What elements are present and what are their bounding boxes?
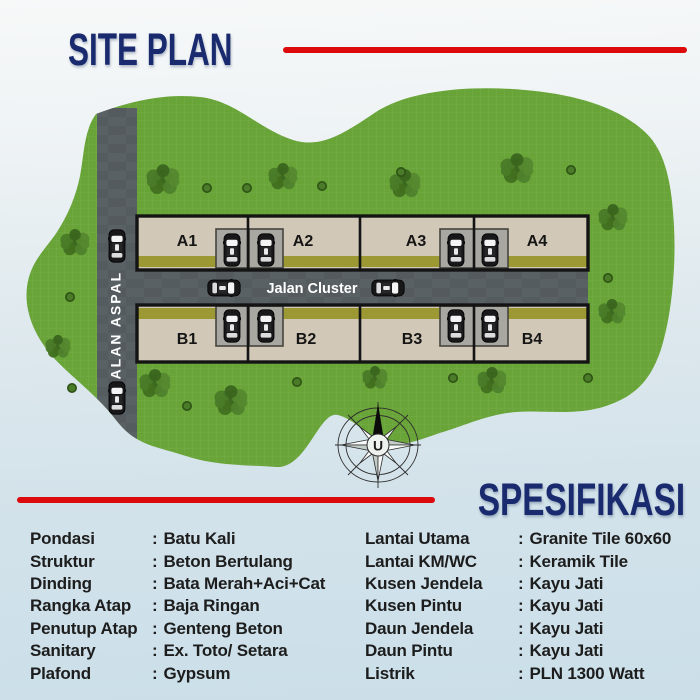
car-icon <box>108 230 126 262</box>
spec-value: :Kayu Jati <box>518 641 692 661</box>
garden-strip-b <box>137 308 588 319</box>
spec-title: SPESIFIKASI <box>478 477 685 522</box>
bush-icon <box>66 293 74 301</box>
bush-icon <box>318 182 326 190</box>
spec-colon: : <box>518 574 523 593</box>
spec-value: :Beton Bertulang <box>152 552 365 572</box>
spec-label: Daun Pintu <box>365 641 518 661</box>
spec-value: :Genteng Beton <box>152 619 365 639</box>
spec-row: Kusen Pintu :Kayu Jati <box>365 595 692 617</box>
spec-label: Plafond <box>30 664 152 684</box>
spec-value: :Gypsum <box>152 664 365 684</box>
unit-label-b4: B4 <box>522 331 543 348</box>
spec-row: Penutup Atap :Genteng Beton <box>30 618 365 640</box>
spec-colon: : <box>152 664 157 683</box>
spec-colon: : <box>518 552 523 571</box>
car-icon <box>447 310 465 342</box>
bush-icon <box>397 168 405 176</box>
spec-label: Pondasi <box>30 529 152 549</box>
spec-label: Daun Jendela <box>365 619 518 639</box>
spec-colon: : <box>152 552 157 571</box>
unit-label-a2: A2 <box>293 233 314 250</box>
unit-label-a4: A4 <box>527 233 548 250</box>
spec-row: Kusen Jendela :Kayu Jati <box>365 573 692 595</box>
spec-row: Lantai Utama :Granite Tile 60x60 <box>365 528 692 550</box>
road-vertical-label: JALAN ASPAL <box>108 271 124 389</box>
spec-label: Struktur <box>30 552 152 572</box>
bush-icon <box>584 374 592 382</box>
spec-label: Rangka Atap <box>30 596 152 616</box>
spec-row: Plafond :Gypsum <box>30 662 365 684</box>
road-horizontal-label: Jalan Cluster <box>266 281 357 297</box>
bush-icon <box>567 166 575 174</box>
spec-colon: : <box>152 641 157 660</box>
car-icon <box>481 310 499 342</box>
car-icon <box>223 310 241 342</box>
bush-icon <box>68 384 76 392</box>
unit-label-a1: A1 <box>177 233 198 250</box>
bush-icon <box>203 184 211 192</box>
spec-label: Lantai KM/WC <box>365 552 518 572</box>
spec-value: :Granite Tile 60x60 <box>518 529 692 549</box>
spec-colon: : <box>518 641 523 660</box>
spec-row: Rangka Atap :Baja Ringan <box>30 595 365 617</box>
car-icon <box>223 234 241 266</box>
spec-row: Lantai KM/WC :Keramik Tile <box>365 550 692 572</box>
unit-label-b2: B2 <box>296 331 317 348</box>
spec-value: :Kayu Jati <box>518 574 692 594</box>
spec-label: Sanitary <box>30 641 152 661</box>
spec-value: :Ex. Toto/ Setara <box>152 641 365 661</box>
spec-colon: : <box>518 619 523 638</box>
car-icon <box>257 310 275 342</box>
unit-label-b1: B1 <box>177 331 198 348</box>
spec-value: :Baja Ringan <box>152 596 365 616</box>
spec-value: :Kayu Jati <box>518 596 692 616</box>
spec-table-right: Lantai Utama :Granite Tile 60x60 Lantai … <box>365 528 692 685</box>
spec-colon: : <box>152 596 157 615</box>
spec-label: Lantai Utama <box>365 529 518 549</box>
spec-value: :Kayu Jati <box>518 619 692 639</box>
spec-value: :Bata Merah+Aci+Cat <box>152 574 365 594</box>
garden-strip-a <box>137 256 588 267</box>
compass-label: U <box>373 438 383 454</box>
spec-colon: : <box>518 529 523 548</box>
spec-header: SPESIFIKASI <box>17 477 685 522</box>
spec-value: :Batu Kali <box>152 529 365 549</box>
page-background: SITE PLAN <box>0 0 700 700</box>
spec-colon: : <box>518 664 523 683</box>
car-icon <box>447 234 465 266</box>
spec-row: Daun Jendela :Kayu Jati <box>365 618 692 640</box>
bush-icon <box>604 274 612 282</box>
spec-row: Listrik :PLN 1300 Watt <box>365 662 692 684</box>
bush-icon <box>183 402 191 410</box>
car-icon <box>257 234 275 266</box>
site-plan-svg: A1 A2 A3 A4 B1 B2 B3 B4 Jalan Cluster JA… <box>0 0 700 520</box>
spec-rule <box>17 497 435 503</box>
spec-value: :Keramik Tile <box>518 552 692 572</box>
spec-table-left: Pondasi :Batu Kali Struktur :Beton Bertu… <box>30 528 365 685</box>
spec-row: Daun Pintu :Kayu Jati <box>365 640 692 662</box>
spec-label: Dinding <box>30 574 152 594</box>
spec-row: Struktur :Beton Bertulang <box>30 550 365 572</box>
spec-label: Listrik <box>365 664 518 684</box>
car-icon <box>372 279 404 297</box>
spec-colon: : <box>152 619 157 638</box>
car-icon <box>481 234 499 266</box>
spec-colon: : <box>518 596 523 615</box>
spec-label: Penutup Atap <box>30 619 152 639</box>
unit-label-a3: A3 <box>406 233 427 250</box>
spec-label: Kusen Pintu <box>365 596 518 616</box>
car-icon <box>208 279 240 297</box>
spec-section: Pondasi :Batu Kali Struktur :Beton Bertu… <box>30 528 692 685</box>
spec-row: Sanitary :Ex. Toto/ Setara <box>30 640 365 662</box>
spec-row: Pondasi :Batu Kali <box>30 528 365 550</box>
unit-label-b3: B3 <box>402 331 423 348</box>
spec-colon: : <box>152 574 157 593</box>
spec-value: :PLN 1300 Watt <box>518 664 692 684</box>
car-icon <box>108 382 126 414</box>
spec-label: Kusen Jendela <box>365 574 518 594</box>
road-horizontal-texture <box>137 270 588 305</box>
spec-colon: : <box>152 529 157 548</box>
bush-icon <box>449 374 457 382</box>
bush-icon <box>293 378 301 386</box>
spec-row: Dinding :Bata Merah+Aci+Cat <box>30 573 365 595</box>
bush-icon <box>243 184 251 192</box>
